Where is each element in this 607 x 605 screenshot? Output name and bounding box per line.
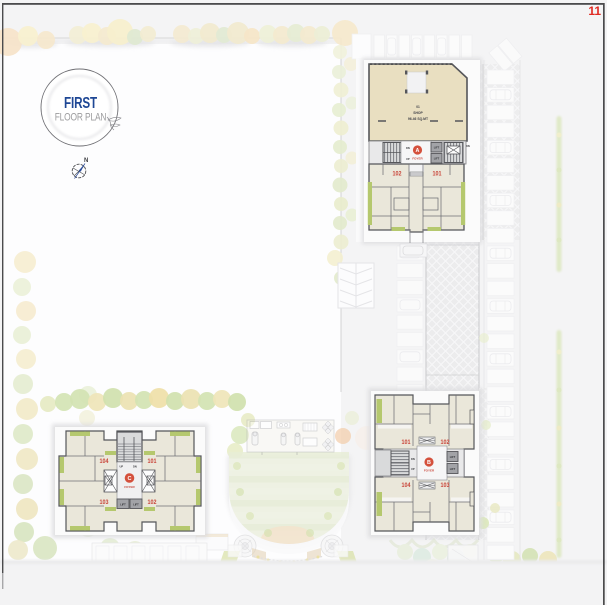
svg-text:DN: DN bbox=[411, 457, 415, 461]
svg-text:96.46 SQ.MT: 96.46 SQ.MT bbox=[408, 117, 429, 121]
svg-text:FOYER: FOYER bbox=[424, 469, 435, 473]
svg-text:104: 104 bbox=[100, 458, 109, 465]
svg-text:104: 104 bbox=[402, 482, 411, 489]
svg-text:101: 101 bbox=[402, 439, 411, 446]
svg-text:N: N bbox=[84, 158, 88, 164]
svg-text:102: 102 bbox=[148, 499, 157, 506]
svg-text:101: 101 bbox=[433, 171, 442, 178]
svg-text:LIFT: LIFT bbox=[450, 467, 456, 471]
svg-text:11: 11 bbox=[588, 4, 601, 18]
svg-text:UP: UP bbox=[120, 465, 124, 469]
svg-text:LIFT: LIFT bbox=[434, 146, 440, 150]
svg-text:A: A bbox=[416, 148, 420, 154]
svg-text:LIFT: LIFT bbox=[450, 455, 456, 459]
svg-text:102: 102 bbox=[441, 439, 450, 446]
svg-text:101: 101 bbox=[148, 458, 157, 465]
svg-text:103: 103 bbox=[441, 482, 450, 489]
svg-text:FIRST: FIRST bbox=[64, 93, 98, 111]
svg-text:103: 103 bbox=[100, 499, 109, 506]
svg-text:FOYER: FOYER bbox=[124, 485, 135, 489]
svg-text:B: B bbox=[427, 460, 431, 466]
svg-text:UP: UP bbox=[411, 467, 415, 471]
svg-text:LIFT: LIFT bbox=[120, 503, 126, 507]
svg-text:DN: DN bbox=[466, 144, 470, 148]
svg-text:FOYER: FOYER bbox=[412, 157, 423, 161]
svg-text:102: 102 bbox=[393, 171, 402, 178]
svg-text:DN: DN bbox=[406, 146, 410, 150]
svg-text:C: C bbox=[127, 476, 131, 482]
svg-text:DN: DN bbox=[133, 465, 137, 469]
svg-text:FLOOR PLAN: FLOOR PLAN bbox=[55, 111, 107, 124]
svg-text:UP: UP bbox=[406, 157, 410, 161]
svg-text:LIFT: LIFT bbox=[133, 503, 139, 507]
svg-text:01: 01 bbox=[416, 105, 420, 109]
svg-text:LIFT: LIFT bbox=[434, 157, 440, 161]
svg-text:SHOP: SHOP bbox=[413, 111, 423, 115]
